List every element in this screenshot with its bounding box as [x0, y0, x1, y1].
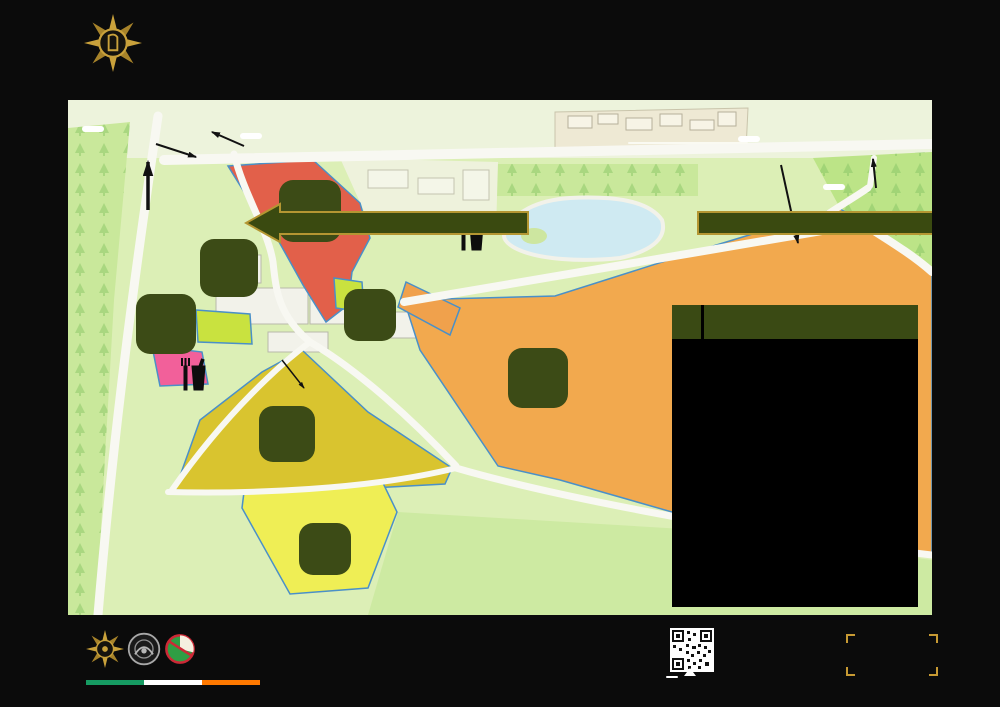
strengthen-the-nation-tagline	[846, 634, 938, 676]
zone-badge-p	[299, 523, 351, 575]
zone-badge-a	[259, 406, 315, 462]
zone-badge-c	[200, 239, 258, 297]
main-gate-label	[823, 184, 845, 190]
scan-here-pointer	[684, 668, 696, 676]
bike-rack-left-label	[82, 126, 104, 132]
tagline-corner-icon	[846, 667, 855, 676]
tricolor-orange	[202, 680, 260, 685]
zone-badge-m	[136, 294, 196, 354]
event-map	[68, 100, 932, 615]
qr-code	[670, 628, 714, 672]
back-gate-label	[240, 133, 262, 139]
food-drink-icon	[178, 356, 206, 392]
tricolor-white	[144, 680, 202, 685]
tagline-corner-icon	[929, 667, 938, 676]
map-key-panel	[672, 305, 918, 607]
scan-here-label	[666, 676, 678, 678]
whites-gate-label	[628, 142, 748, 144]
army-crest-icon	[126, 631, 162, 667]
direction-banner-castleknock	[244, 202, 532, 244]
bike-rack-right-label	[738, 136, 760, 142]
direction-banner-left-text	[286, 202, 526, 244]
tagline-corner-icon	[846, 634, 855, 643]
irish-tricolor-bar	[86, 680, 260, 685]
map-key-header	[672, 305, 918, 339]
tricolor-green	[86, 680, 144, 685]
map-key-header-divider	[701, 305, 704, 339]
defence-forces-badge-icon	[84, 14, 142, 72]
defence-forces-badge-small-icon	[86, 630, 124, 668]
zone-c-patch-1	[196, 310, 252, 344]
zone-badge-d	[344, 289, 396, 341]
map-key-rows	[672, 342, 918, 607]
direction-banner-right-text	[702, 202, 932, 244]
tagline-corner-icon	[929, 634, 938, 643]
zone-badge-l	[508, 348, 568, 408]
direction-banner-bus-stops	[694, 202, 932, 244]
unit-crest-icon	[163, 632, 197, 666]
